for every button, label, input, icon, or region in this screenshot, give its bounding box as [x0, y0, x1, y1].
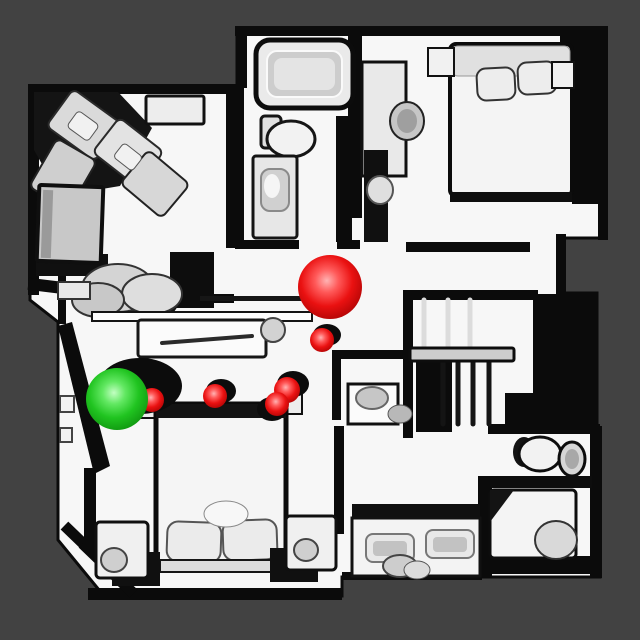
waypoint-red-large[interactable]: [298, 255, 362, 319]
suite-sink-basin: [397, 109, 417, 133]
bed-master-foot-shadow: [450, 192, 572, 202]
wall-br-top: [488, 424, 600, 434]
scan-viewport[interactable]: [0, 0, 640, 640]
agent-green-sphere[interactable]: [86, 368, 148, 430]
wall-br-right: [590, 426, 602, 578]
nightstand-b-knob: [294, 539, 318, 561]
kitchen-left-bits: [58, 282, 90, 299]
wall-bath-top: [235, 26, 360, 36]
wall-laundry-left: [332, 350, 341, 420]
nightstand-a-knob: [101, 548, 127, 572]
wall-corridor-top: [406, 242, 530, 252]
bed-master-pillow-right: [517, 61, 557, 95]
wall-bath-bottom-left: [235, 240, 299, 249]
waypoint-red-pair-bottom-sphere[interactable]: [265, 392, 289, 416]
stair-handrail: [410, 348, 514, 361]
wall-bedroom-left-lower: [84, 468, 96, 548]
wall-tl-right: [226, 84, 244, 248]
bed-lower-foot: [160, 560, 282, 572]
side-table: [146, 96, 204, 124]
toilet2-bowl: [519, 437, 561, 471]
br-divider-band: [490, 476, 592, 488]
wall-bath-bottom-right: [337, 240, 360, 249]
clothes-pile-2: [404, 561, 430, 579]
wall-bath-clutter: [336, 116, 352, 242]
dresser2-drawer-a-inset: [373, 541, 407, 556]
br-round-pillow: [535, 521, 577, 559]
counter-ledge: [200, 296, 312, 301]
laundry-bits: [388, 405, 412, 423]
toilet-bowl: [267, 121, 315, 157]
dresser2-drawer-b-inset: [433, 537, 467, 552]
blanket-fold: [204, 501, 248, 527]
ball-stool: [261, 318, 285, 342]
wall-corridor-right-stub: [556, 234, 566, 296]
waypoint-red-mid-sphere[interactable]: [203, 384, 227, 408]
suite-stool: [367, 176, 393, 204]
bathtub-floor: [274, 58, 335, 90]
floorplan-svg: [0, 0, 640, 640]
sofa-lump-2: [122, 274, 182, 314]
left-wall-door-tab-a: [60, 396, 74, 412]
left-wall-door-tab-b: [60, 428, 72, 442]
waypoint-red-small-sphere[interactable]: [310, 328, 334, 352]
wall-laundry-block: [416, 354, 452, 432]
vanity-sink-highlight: [264, 174, 280, 198]
wall-right-thick: [572, 84, 608, 204]
nightstand-master-right: [552, 62, 574, 88]
br-sink-basin: [565, 449, 579, 469]
wall-dark-room: [533, 294, 597, 434]
agent-green[interactable]: [86, 368, 148, 430]
bed-master-pillow-left: [476, 67, 516, 101]
laundry-sink: [356, 387, 388, 409]
nightstand-master-left: [428, 48, 454, 76]
bed-lower-pillow-a: [166, 521, 221, 563]
waypoint-red-large-sphere[interactable]: [298, 255, 362, 319]
